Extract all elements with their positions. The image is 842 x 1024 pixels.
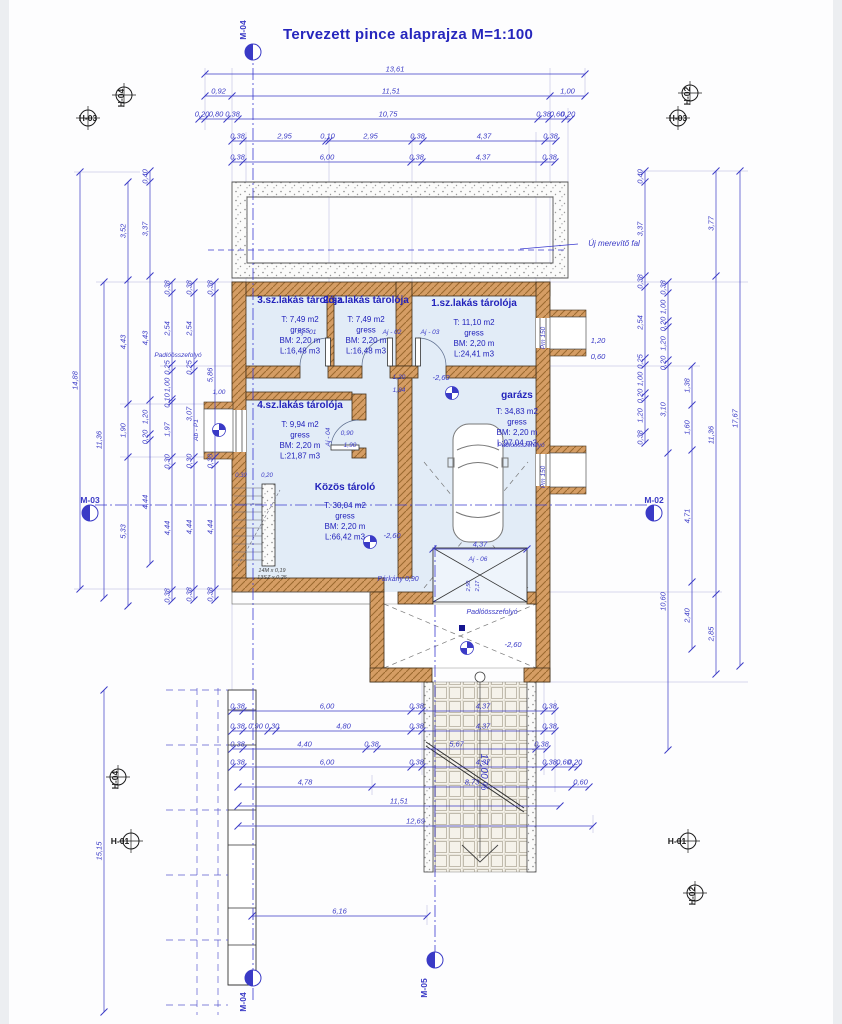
dimension-label: 13,61 [386,65,405,74]
marker-label: M-04 [238,992,248,1012]
room-detail: L:21,87 m3 [280,452,321,461]
annotation-label: Aj - 06 [468,556,488,563]
dimension-label: 3,77 [707,215,716,230]
room-detail: L:66,42 m3 [325,533,366,542]
dimension-label: 0,40 [141,168,150,183]
dimension-label: 0,38 [636,273,645,288]
dimension-label: 1,60 [683,419,692,434]
dimension-label: 0,38 [185,586,194,601]
floorplan-canvas: 13,610,9211,511,000,200,800,3810,750,380… [0,0,842,1024]
annotation-label: 2,17 [475,580,481,593]
dimension-label: 0,38 [230,758,245,767]
room-detail: T: 7,49 m2 [281,315,319,324]
dimension-label: 1,20 [636,407,645,422]
dimension-label: 3,37 [636,221,645,236]
section-marker-fill [646,505,654,521]
dimension-label: 2,85 [707,626,716,642]
dimension-label: 10,75 [379,110,399,119]
annotation-label: 1,90 [344,442,357,449]
annotation-label: Párkány 0,90 [377,576,418,583]
marker-label: M-05 [419,978,429,998]
room-detail: L:16,48 m3 [280,347,321,356]
dimension-label: 0,30 [185,453,194,468]
dimension-label: 0,38 [636,429,645,444]
dimension-label: 0,60 [573,778,588,787]
dimension-label: 1,00 [636,371,645,386]
marker-label: H-04 [116,89,126,108]
dimension-label: 2,54 [636,315,645,331]
dimension-label: 0,25 [185,359,194,374]
dimension-label: 0,38 [534,740,549,749]
room-detail: L:16,48 m3 [346,347,387,356]
marker-label: H-04 [110,771,120,790]
room-detail: gress [464,329,484,338]
dimension-label: 0,80 [209,110,224,119]
dimension-label: 14,88 [71,370,80,390]
dimension-label: 3,07 [185,406,194,421]
room-name: 2.sz.lakás tárolója [323,295,409,306]
dimension-label: 0,40 [636,168,645,183]
room-detail: BM: 2,20 m [454,339,495,348]
dimension-label: 2,95 [362,132,378,141]
dimension-label: 0,30 [265,722,280,731]
dimension-label: 0,38 [163,587,172,602]
dimension-label: 0,38 [230,702,245,711]
room-detail: gress [356,326,376,335]
dimension-label: 4,44 [185,520,194,535]
room-detail: T: 30,04 m2 [324,501,366,510]
annotation-label: Pm 150 [540,326,547,349]
annotation-label: 13SZ x 0,25 [257,575,288,581]
annotation-label: Aj - 02 [382,329,402,336]
dimension-label: 0,38 [230,722,245,731]
dimension-label: 0,38 [410,132,425,141]
dimension-label: 0,20 [141,429,150,444]
dimension-label: 5,67 [449,740,464,749]
drain-icon [459,625,465,631]
dimension-label: 12,69 [406,817,426,826]
annotation-label: -2,60 [432,373,450,382]
dimension-label: 5,33 [119,523,128,538]
dimension-label: 6,00 [320,702,335,711]
room-detail: T: 34,83 m2 [496,407,538,416]
annotation-label: Padlóösszefolyó [467,609,518,616]
room-name: Közös tároló [315,482,376,493]
annotation-label: 0,90 [341,430,354,437]
room-name: 1.sz.lakás tárolója [431,298,517,309]
dimension-label: 1,00 [560,87,575,96]
annotation-label: Pm 150 [540,465,547,488]
dimension-label: 3,37 [141,221,150,236]
annotation-label: 1,84 [393,387,406,394]
marker-label: H-03 [669,113,688,123]
marker-label: M-03 [80,495,100,505]
dimension-label: 17,67 [731,408,740,428]
dimension-label: 1,90 [119,422,128,437]
dimension-label: 4,44 [206,520,215,535]
dimension-label: 6,00 [320,758,335,767]
dimension-label: 0,20 [568,758,583,767]
room-name: garázs [501,390,533,401]
annotation-label: 0,60 [591,352,606,361]
annotation-label: 1,20 [393,374,406,381]
room-detail: T: 7,49 m2 [347,315,385,324]
dimension-label: 0,25 [163,359,172,374]
marker-label: H-02 [687,887,697,906]
dimension-label: 0,20 [659,316,668,331]
dimension-label: 2,95 [276,132,292,141]
dimension-label: 1,38 [683,377,692,392]
dimension-label: 0,38 [409,758,424,767]
dimension-label: 2,40 [683,607,692,623]
room-name: 4.sz.lakás tárolója [257,400,343,411]
dimension-label: 11,51 [382,87,400,96]
dimension-label: 0,38 [409,722,424,731]
room-detail: gress [290,326,310,335]
dimension-label: 0,30 [206,453,215,468]
dimension-label: 2,54 [185,321,194,337]
dimension-label: 4,71 [683,509,692,524]
room-detail: BM: 2,20 m [346,336,387,345]
dimension-label: 4,80 [336,722,351,731]
room-detail: BM: 2,20 m [325,522,366,531]
dimension-label: 0,25 [636,353,645,368]
annotation-label: Aj - 04 [325,427,332,447]
dimension-label: 0,20 [561,110,576,119]
dimension-label: 4,44 [141,495,150,510]
dimension-label: 11,51 [390,797,408,806]
dimension-label: 0,38 [225,110,240,119]
room-detail: BM: 2,20 m [280,441,321,450]
dimension-label: 0,38 [542,702,557,711]
dimension-label: 0,38 [364,740,379,749]
dimension-label: 3,52 [119,223,128,238]
annotation-label: -2,60 [504,640,522,649]
annotation-label: 1,00 [213,389,226,396]
dimension-label: 0,38 [206,279,215,294]
marker-label: M-02 [644,495,664,505]
dimension-label: 0,20 [636,388,645,403]
annotation-label: -2,60 [383,531,401,540]
dimension-label: 6,16 [332,907,347,916]
dimension-label: 15,15 [95,841,104,861]
room-detail: L:24,41 m3 [454,350,495,359]
room-detail: BM: 2,20 m [280,336,321,345]
dimension-label: 4,37 [477,132,492,141]
dimension-label: 0,30 [163,453,172,468]
dimension-label: 0,90 [248,722,263,731]
dimension-label: 0,38 [409,153,424,162]
dimension-label: 2,54 [163,321,172,337]
annotation-label: 14M x 0,19 [258,568,285,574]
dimension-label: 4,40 [297,740,312,749]
dimension-label: 0,38 [206,586,215,601]
section-marker-fill [82,505,90,521]
room-detail: L:97,04 m3 [497,439,538,448]
dimension-label: 1,00 [163,377,172,392]
annotation-label: 1,20 [591,336,606,345]
dimension-label: 0,20 [659,355,668,370]
dimension-label: 11,36 [707,425,716,444]
annotation-label: Ab - P1 [193,419,200,442]
room-detail: T: 9,94 m2 [281,420,319,429]
room-detail: gress [290,431,310,440]
dimension-label: 4,78 [298,778,313,787]
dimension-label: 0,38 [230,740,245,749]
dimension-label: 0,38 [230,132,245,141]
dimension-label: 0,92 [211,87,226,96]
marker-label: H-01 [668,836,687,846]
dimension-label: 8,73 [465,778,480,787]
dimension-label: 5,86 [206,367,215,382]
marker-label: H-03 [79,113,98,123]
dimension-label: 1,20 [659,335,668,350]
dimension-label: 0,38 [542,722,557,731]
dimension-label: 0,38 [185,279,194,294]
room-detail: BM: 2,20 m [497,428,538,437]
dimension-label: 0,10 [320,132,335,141]
marker-label: H-01 [111,836,130,846]
annotation-label: 2,50 [466,580,472,593]
dimension-label: 0,38 [542,153,557,162]
dimension-label: 0,38 [409,702,424,711]
section-marker-fill [427,952,435,968]
dimension-label: 4,37 [476,722,491,731]
dimension-label: 6,00 [320,153,335,162]
annotation-label: 0,20 [261,473,273,479]
dimension-label: 4,37 [476,702,491,711]
section-marker-fill [245,44,253,60]
room-detail: gress [507,418,527,427]
annotation-label: 17,00 % [478,754,489,791]
dimension-label: 1,20 [141,409,150,424]
dimension-label: 4,37 [476,153,491,162]
room-detail: T: 11,10 m2 [453,318,495,327]
dimension-label: 0,38 [659,279,668,294]
room-detail: gress [335,512,355,521]
dimension-label: 4,44 [163,521,172,536]
dimension-label: 0,38 [163,279,172,294]
annotation-label: 0,30 [235,473,247,479]
dimension-label: 11,36 [95,430,104,449]
dimension-label: 3,10 [659,401,668,416]
dimension-label: 0,38 [543,132,558,141]
dimension-label: 10,60 [659,591,668,611]
dimension-label: 1,97 [163,421,172,436]
dimension-label: 0,38 [230,153,245,162]
dimension-label: 4,37 [473,540,488,549]
dimension-label: 4,43 [119,334,128,349]
annotation-label: Padlóösszefolyó [154,352,202,359]
annotation-label: Új merevítő fal [588,239,640,248]
dimension-label: 1,00 [659,299,668,314]
marker-label: M-04 [238,20,248,40]
dimension-label: 0,10 [163,392,172,407]
existing-wall [232,182,568,278]
dimension-label: 4,43 [141,330,150,345]
marker-label: H-02 [682,87,692,106]
retaining-wall [166,688,256,1015]
annotation-label: Aj - 03 [420,329,440,336]
